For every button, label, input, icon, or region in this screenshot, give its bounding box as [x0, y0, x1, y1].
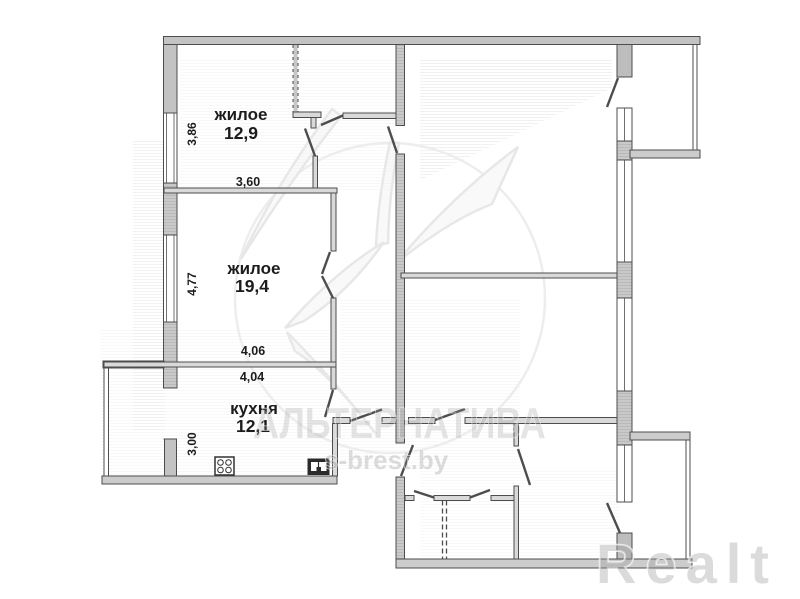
svg-text:жилое: жилое [214, 105, 268, 124]
svg-text:АЛЬТЕРНАТИВА: АЛЬТЕРНАТИВА [253, 399, 546, 448]
svg-text:s-brest.by: s-brest.by [324, 445, 449, 475]
svg-text:3,60: 3,60 [236, 175, 260, 189]
svg-text:4,77: 4,77 [185, 272, 199, 296]
svg-text:3,00: 3,00 [185, 432, 199, 456]
svg-text:19,4: 19,4 [235, 276, 269, 296]
svg-text:Realt: Realt [596, 532, 778, 595]
svg-text:4,06: 4,06 [241, 344, 265, 358]
svg-text:3,86: 3,86 [185, 122, 199, 146]
svg-text:12,9: 12,9 [224, 123, 258, 143]
svg-text:4,04: 4,04 [240, 370, 264, 384]
